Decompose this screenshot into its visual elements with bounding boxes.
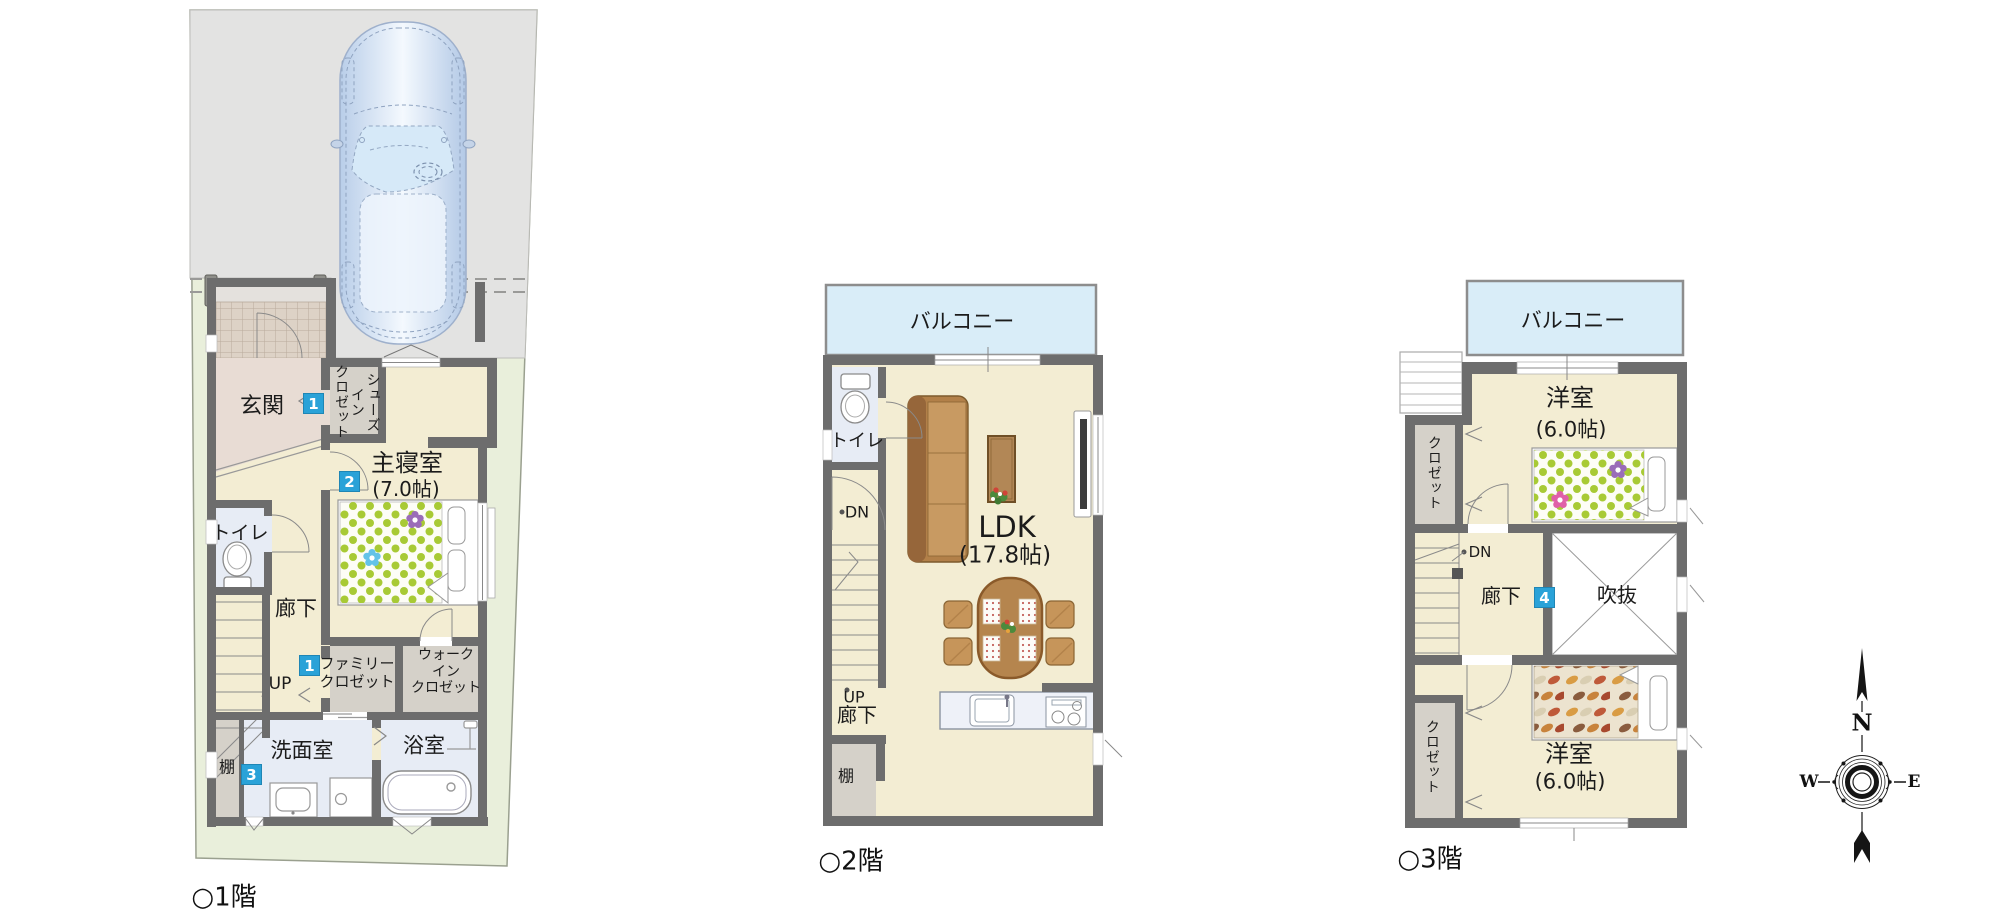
room-label-bedroom-south-size: (6.0帖)	[1535, 770, 1606, 795]
room-label-ldk: LDK	[978, 510, 1036, 544]
room-label-shelf-2f: 棚	[838, 768, 854, 787]
room-label-hallway-1f: 廊下	[275, 597, 317, 622]
car-icon	[331, 22, 475, 344]
room-label-balcony-2f: バルコニー	[910, 310, 1015, 335]
room-label-toilet-2f: トイレ	[830, 430, 884, 451]
room-label-master-bedroom: 主寝室	[371, 449, 443, 477]
room-label-family-closet: ファミリー クロゼット	[319, 655, 394, 690]
toilet-icon-1f	[223, 542, 251, 591]
washing-machine-icon	[330, 778, 372, 817]
room-label-toilet-1f: トイレ	[211, 522, 268, 544]
plan-graphics	[0, 0, 2000, 920]
room-label-bedroom-south: 洋室	[1545, 740, 1593, 768]
floor3-caption: ○3階	[1397, 845, 1462, 876]
tv-icon	[1074, 411, 1091, 517]
room-label-bathroom: 浴室	[403, 734, 445, 759]
room-label-genkan: 玄関	[240, 394, 284, 420]
stairs-down-label-3f: DN	[1469, 544, 1492, 562]
compass-west-label: W	[1799, 772, 1818, 792]
room-label-hallway-2f: 廊下	[837, 704, 877, 728]
room-label-shoes-closet: シューズ イン クロゼット	[332, 365, 379, 440]
room-label-ldk-size: (17.8帖)	[959, 542, 1051, 569]
kitchen-counter-icon	[940, 692, 1097, 729]
feature-badge-washroom: 3	[241, 764, 262, 785]
sofa-icon	[908, 396, 968, 562]
room-label-walk-in-closet: ウォーク イン クロゼット	[411, 647, 481, 697]
feature-badge-family-closet: 1	[299, 655, 320, 676]
room-label-void: 吹抜	[1597, 584, 1637, 608]
toilet-icon-2f	[841, 374, 870, 423]
room-label-closet-south: クロゼット	[1423, 720, 1439, 795]
room-label-bedroom-north-size: (6.0帖)	[1536, 418, 1607, 443]
floor1-caption: ○1階	[191, 883, 256, 914]
floor2-caption: ○2階	[818, 847, 883, 878]
stairs-down-label-2f: DN	[845, 504, 869, 523]
stairs-up-label-1f: UP	[269, 674, 292, 694]
compass-rose	[1818, 648, 1906, 863]
floorplan-canvas: 玄関 シューズ イン クロゼット 主寝室 (7.0帖) トイレ 廊下 UP ファ…	[0, 0, 2000, 920]
bathtub-icon	[383, 771, 471, 814]
room-label-balcony-3f: バルコニー	[1521, 309, 1626, 334]
compass-north-label: N	[1851, 710, 1872, 737]
room-label-shelf-1f: 棚	[219, 759, 235, 778]
room-label-washroom: 洗面室	[271, 739, 334, 764]
room-label-bedroom-north: 洋室	[1546, 384, 1594, 412]
room-label-hallway-3f: 廊下	[1481, 585, 1521, 609]
feature-badge-hallway-3f: 4	[1534, 587, 1555, 608]
bed-icon-south	[1532, 664, 1677, 740]
vanity-icon	[270, 783, 317, 817]
bed-icon-master	[338, 500, 478, 605]
feature-badge-shoes-closet: 1	[303, 393, 324, 414]
bed-icon-north	[1532, 448, 1677, 522]
room-label-master-bedroom-size: (7.0帖)	[372, 478, 439, 502]
plant-stand-icon	[988, 436, 1015, 505]
roof-hatch	[1400, 352, 1462, 413]
compass-east-label: E	[1908, 772, 1921, 792]
feature-badge-master-bedroom: 2	[339, 471, 360, 492]
room-label-closet-north: クロゼット	[1425, 436, 1441, 511]
